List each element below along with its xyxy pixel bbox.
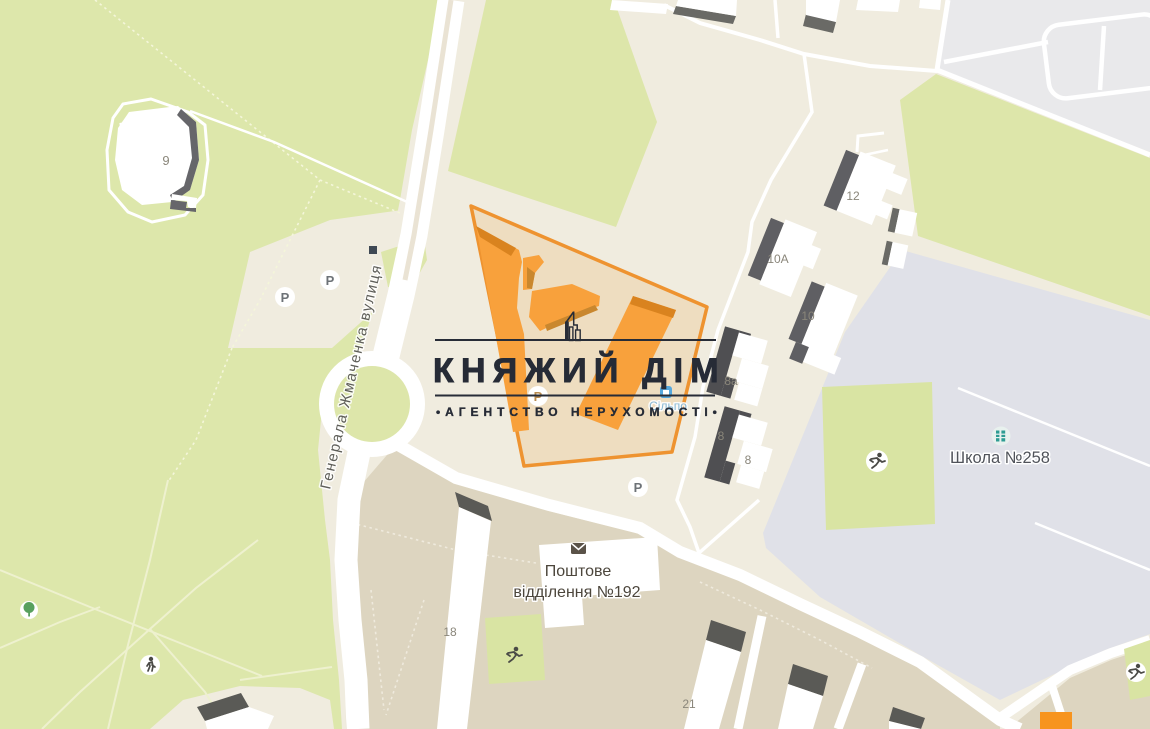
svg-text:Поштове: Поштове	[545, 563, 612, 580]
svg-text:P: P	[634, 480, 643, 495]
svg-text:P: P	[281, 290, 290, 305]
svg-text:12: 12	[846, 189, 860, 203]
svg-text:8: 8	[718, 429, 725, 443]
svg-text:Школа №258: Школа №258	[950, 449, 1050, 467]
svg-text:10: 10	[801, 309, 815, 323]
svg-text:18: 18	[443, 625, 457, 639]
svg-text:відділення №192: відділення №192	[513, 584, 640, 601]
svg-text:•АГЕНТСТВО НЕРУХОМОСТІ•: •АГЕНТСТВО НЕРУХОМОСТІ•	[436, 405, 722, 419]
svg-text:21: 21	[682, 697, 696, 711]
svg-text:8a: 8a	[724, 374, 738, 388]
svg-text:10A: 10A	[767, 252, 788, 266]
svg-text:8: 8	[745, 453, 752, 467]
svg-text:9: 9	[162, 153, 169, 168]
svg-text:P: P	[326, 273, 335, 288]
svg-text:КНЯЖИЙ ДІМ: КНЯЖИЙ ДІМ	[433, 351, 726, 390]
